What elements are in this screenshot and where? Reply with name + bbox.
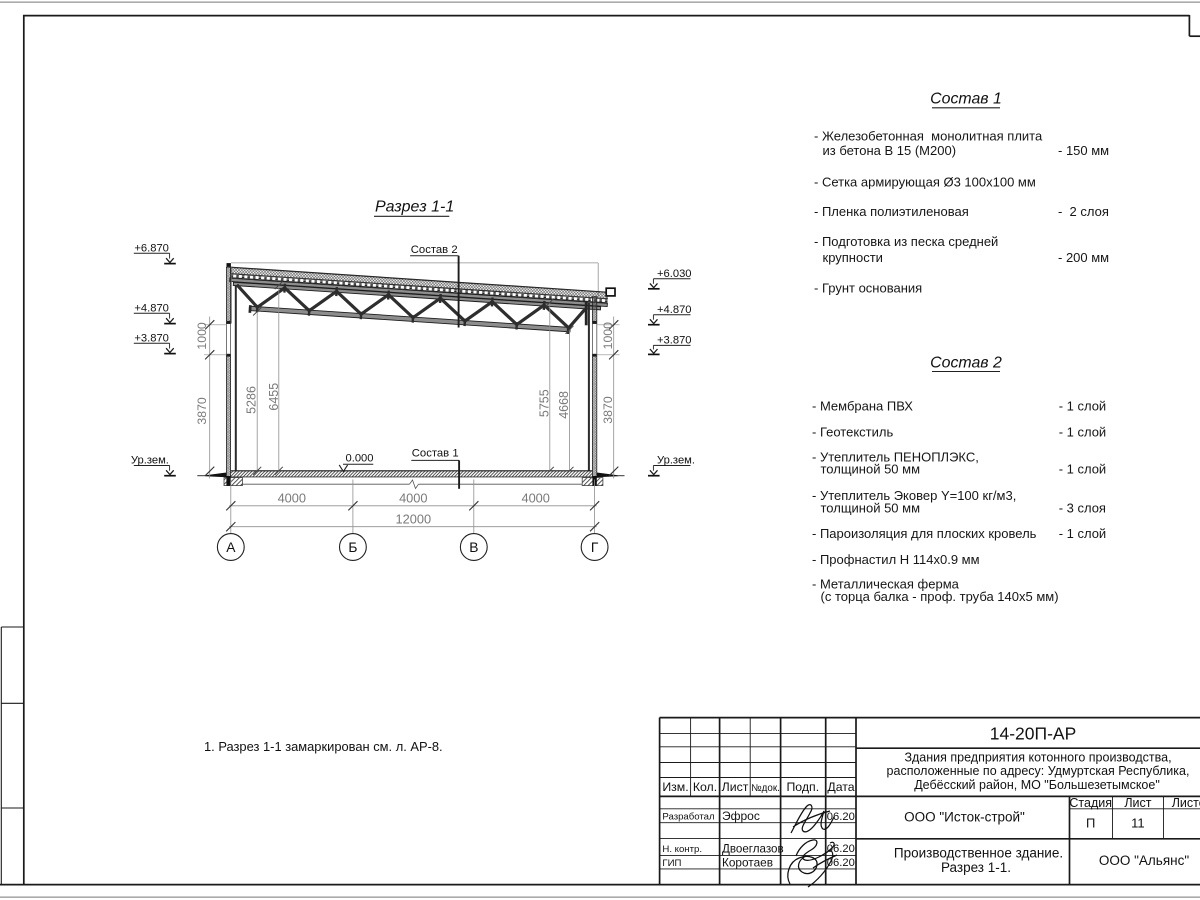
svg-text:06.20: 06.20 <box>827 857 855 869</box>
svg-text:- Грунт основания: - Грунт основания <box>814 281 922 296</box>
svg-text:Листов: Листов <box>1172 796 1200 810</box>
svg-text:- 150 мм: - 150 мм <box>1058 143 1109 158</box>
svg-text:Г: Г <box>591 540 599 555</box>
svg-text:+4.870: +4.870 <box>657 304 692 316</box>
svg-text:из бетона В 15 (М200): из бетона В 15 (М200) <box>823 143 957 158</box>
svg-text:+3.870: +3.870 <box>134 333 169 345</box>
svg-text:В: В <box>469 540 478 555</box>
svg-text:- 2 слоя: - 2 слоя <box>1058 204 1109 219</box>
svg-text:1000: 1000 <box>195 322 209 350</box>
svg-text:Производственное здание.: Производственное здание. <box>894 845 1063 860</box>
svg-text:5286: 5286 <box>245 386 259 414</box>
svg-text:Лист: Лист <box>1124 796 1151 810</box>
svg-text:Лист: Лист <box>722 780 749 794</box>
svg-text:Изм.: Изм. <box>662 780 688 794</box>
svg-text:№док.: №док. <box>751 783 780 794</box>
svg-text:Здания предприятия котонного п: Здания предприятия котонного производств… <box>904 751 1171 765</box>
svg-text:Разрез 1-1: Разрез 1-1 <box>375 199 454 216</box>
svg-text:+6.870: +6.870 <box>134 243 169 255</box>
svg-text:толщиной 50 мм: толщиной 50 мм <box>821 500 921 515</box>
svg-text:ООО "Альянс": ООО "Альянс" <box>1099 853 1189 868</box>
svg-text:Двоеглазов: Двоеглазов <box>722 842 784 855</box>
svg-text:06.20: 06.20 <box>827 811 855 823</box>
svg-text:Н. контр.: Н. контр. <box>662 844 702 855</box>
svg-text:- Железобетонная монолитная п: - Железобетонная монолитная плита <box>814 129 1043 144</box>
svg-text:Ур.зем.: Ур.зем. <box>657 455 695 467</box>
svg-text:6455: 6455 <box>267 383 281 411</box>
svg-text:- Сетка армирующая Ø3 100х100: - Сетка армирующая Ø3 100х100 мм <box>814 174 1036 189</box>
svg-text:- 3 слоя: - 3 слоя <box>1059 500 1106 515</box>
svg-text:3870: 3870 <box>195 397 209 425</box>
svg-text:4668: 4668 <box>557 391 571 419</box>
svg-text:- 1 слой: - 1 слой <box>1059 526 1107 541</box>
svg-text:+3.870: +3.870 <box>657 335 692 347</box>
svg-text:Состав 2: Состав 2 <box>930 354 1002 371</box>
svg-text:Дата: Дата <box>827 780 854 794</box>
svg-text:- Мембрана ПВХ: - Мембрана ПВХ <box>812 399 913 414</box>
svg-text:12000: 12000 <box>396 511 432 526</box>
svg-text:ООО "Исток-строй": ООО "Исток-строй" <box>904 810 1025 825</box>
svg-text:- 1 слой: - 1 слой <box>1059 399 1107 414</box>
svg-text:+4.870: +4.870 <box>134 303 169 315</box>
svg-text:Состав 1: Состав 1 <box>412 448 459 460</box>
svg-text:+6.030: +6.030 <box>657 268 692 280</box>
svg-text:ГИП: ГИП <box>662 858 681 869</box>
svg-text:П: П <box>1086 815 1095 830</box>
svg-text:- 1 слой: - 1 слой <box>1059 425 1107 440</box>
svg-text:- Пленка полиэтиленовая: - Пленка полиэтиленовая <box>814 204 969 219</box>
svg-text:5755: 5755 <box>537 389 551 417</box>
svg-text:4000: 4000 <box>521 490 549 505</box>
svg-text:Б: Б <box>348 540 357 555</box>
svg-text:(с торца балка - проф. труба 1: (с торца балка - проф. труба 140х5 мм) <box>821 589 1059 604</box>
svg-text:Подп.: Подп. <box>786 780 819 794</box>
svg-text:Дебёсский район, МО "Большезет: Дебёсский район, МО "Большезетымское" <box>914 778 1160 792</box>
svg-text:Стадия: Стадия <box>1069 796 1112 810</box>
svg-text:4000: 4000 <box>399 490 427 505</box>
svg-text:1. Разрез 1-1 замаркирован см.: 1. Разрез 1-1 замаркирован см. л. АР-8. <box>204 739 443 754</box>
svg-text:толщиной 50 мм: толщиной 50 мм <box>821 461 921 476</box>
svg-text:0.000: 0.000 <box>346 452 374 464</box>
svg-text:расположенные по адресу: Удмур: расположенные по адресу: Удмуртская Респ… <box>887 764 1190 778</box>
svg-text:- Геотекстиль: - Геотекстиль <box>812 425 893 440</box>
svg-text:Состав 2: Состав 2 <box>411 244 458 256</box>
svg-text:А: А <box>226 540 236 555</box>
svg-text:Состав 1: Состав 1 <box>930 91 1002 108</box>
svg-text:1000: 1000 <box>601 322 615 350</box>
svg-text:Разрез 1-1.: Разрез 1-1. <box>941 860 1011 875</box>
svg-text:- Пароизоляция для плоских кро: - Пароизоляция для плоских кровель <box>812 526 1037 541</box>
svg-text:- Подготовка из песка средней: - Подготовка из песка средней <box>814 234 998 249</box>
svg-text:Эфрос: Эфрос <box>722 809 760 823</box>
svg-text:3870: 3870 <box>601 396 615 424</box>
svg-text:Коротаев: Коротаев <box>722 855 773 869</box>
svg-text:Разработал: Разработал <box>662 812 714 823</box>
svg-text:- 1 слой: - 1 слой <box>1059 461 1107 476</box>
svg-text:Кол.: Кол. <box>693 780 717 794</box>
svg-text:крупности: крупности <box>823 250 883 265</box>
svg-text:Ур.зем.: Ур.зем. <box>131 455 169 467</box>
svg-text:- Профнастил Н 114х0.9 мм: - Профнастил Н 114х0.9 мм <box>812 552 980 567</box>
svg-text:- 200 мм: - 200 мм <box>1058 250 1109 265</box>
svg-text:14-20П-АР: 14-20П-АР <box>990 723 1077 743</box>
svg-text:11: 11 <box>1131 815 1145 830</box>
svg-text:4000: 4000 <box>278 490 306 505</box>
